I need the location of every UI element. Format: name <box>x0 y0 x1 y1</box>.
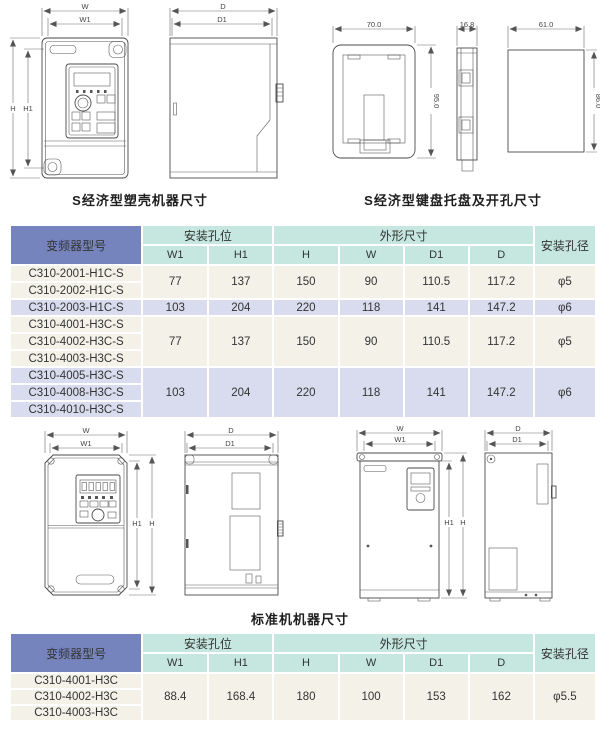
caption-standard-machine: 标准机机器尺寸 <box>148 609 452 628</box>
caption-economic-case: S经济型塑壳机器尺寸 <box>20 190 260 209</box>
value-cell: 220 <box>274 368 337 417</box>
value-cell: 150 <box>274 266 337 298</box>
dim-label-h: H <box>149 519 154 528</box>
header-col-h1: H1 <box>209 246 272 264</box>
std-front-drawing: W W1 H1 H <box>45 426 157 595</box>
header-hole-diameter: 安装孔径 <box>535 226 595 264</box>
dim-label-tray-width: 70.0 <box>367 20 382 29</box>
economic-dimensions-table: 变频器型号安装孔位外形尺寸安装孔径W1H1HWD1DC310-2001-H1C-… <box>9 224 597 419</box>
header-col-h: H <box>274 246 337 264</box>
std-side-drawing: D D1 <box>185 426 283 595</box>
tray-cutout-drawing: 61.0 86.0 <box>508 20 600 152</box>
value-cell: 103 <box>143 368 207 417</box>
value-cell: 162 <box>470 674 533 720</box>
standard-dimension-drawings: W W1 H1 H <box>0 428 600 610</box>
value-cell: 180 <box>274 674 337 720</box>
value-cell: 150 <box>274 317 337 366</box>
dim-label-w1: W1 <box>394 435 405 444</box>
dim-label-hole-height: 86.0 <box>594 94 600 109</box>
header-col-h1: H1 <box>209 654 272 672</box>
value-cell: 147.2 <box>470 368 533 417</box>
value-cell: 141 <box>405 368 468 417</box>
model-cell: C310-2001-H1C-S <box>11 266 141 281</box>
dim-label-d: D <box>220 2 226 11</box>
dim-label-d1: D1 <box>225 439 235 448</box>
dim-label-hole-width: 61.0 <box>539 20 554 29</box>
dim-label-h1: H1 <box>444 518 454 527</box>
value-cell: 77 <box>143 266 207 298</box>
model-cell: C310-4002-H3C <box>11 690 141 704</box>
table-row: C310-4001-H3C88.4168.4180100153162φ5.5 <box>11 674 595 688</box>
value-cell: 118 <box>340 300 403 315</box>
value-cell: 137 <box>209 317 272 366</box>
table-row: C310-2001-H1C-S7713715090110.5117.2φ5 <box>11 266 595 281</box>
header-mounting-holes: 安装孔位 <box>143 226 272 244</box>
model-cell: C310-4002-H3C-S <box>11 334 141 349</box>
value-cell: 100 <box>340 674 403 720</box>
value-cell: φ5 <box>535 266 595 298</box>
dim-label-w1: W1 <box>80 439 91 448</box>
value-cell: 153 <box>405 674 468 720</box>
header-outline: 外形尺寸 <box>274 226 532 244</box>
value-cell: 204 <box>209 300 272 315</box>
header-model: 变频器型号 <box>11 634 141 672</box>
dim-label-w: W <box>81 2 89 11</box>
value-cell: 103 <box>143 300 207 315</box>
value-cell: 141 <box>405 300 468 315</box>
value-cell: 77 <box>143 317 207 366</box>
value-cell: 117.2 <box>470 317 533 366</box>
dim-label-h: H <box>10 104 15 113</box>
dim-label-h1: H1 <box>132 519 142 528</box>
table-row: C310-4001-H3C-S7713715090110.5117.2φ5 <box>11 317 595 332</box>
header-col-d1: D1 <box>405 654 468 672</box>
header-col-d: D <box>470 246 533 264</box>
value-cell: 168.4 <box>209 674 272 720</box>
value-cell: 88.4 <box>143 674 207 720</box>
value-cell: 90 <box>340 317 403 366</box>
model-cell: C310-2003-H1C-S <box>11 300 141 315</box>
model-cell: C310-4001-H3C <box>11 674 141 688</box>
value-cell: φ6 <box>535 368 595 417</box>
value-cell: φ5 <box>535 317 595 366</box>
model-cell: C310-4003-H3C-S <box>11 351 141 366</box>
dim-label-w: W <box>82 426 90 435</box>
model-cell: C310-4008-H3C-S <box>11 385 141 400</box>
value-cell: 118 <box>340 368 403 417</box>
econ-side-drawing: D D1 <box>170 2 283 178</box>
header-outline: 外形尺寸 <box>274 634 532 652</box>
model-cell: C310-4010-H3C-S <box>11 402 141 417</box>
dim-label-tray-height: 95.0 <box>432 94 441 109</box>
header-hole-diameter: 安装孔径 <box>535 634 595 672</box>
tray-front-drawing: 70.0 95.0 <box>333 20 441 158</box>
dim-label-d: D <box>515 424 521 433</box>
dim-label-tray-depth: 16.8 <box>460 20 475 29</box>
value-cell: 110.5 <box>405 317 468 366</box>
value-cell: φ5.5 <box>535 674 595 720</box>
dim-label-d1: D1 <box>512 435 522 444</box>
header-col-w: W <box>340 246 403 264</box>
standard-dimensions-table: 变频器型号安装孔位外形尺寸安装孔径W1H1HWD1DC310-4001-H3C8… <box>9 632 597 722</box>
value-cell: 137 <box>209 266 272 298</box>
std-large-front-drawing: W W1 H1 H <box>357 424 468 601</box>
model-cell: C310-4003-H3C <box>11 706 141 720</box>
std-large-side-drawing: D D1 <box>485 424 556 601</box>
table-row: C310-4005-H3C-S103204220118141147.2φ6 <box>11 368 595 383</box>
header-col-h: H <box>274 654 337 672</box>
value-cell: 90 <box>340 266 403 298</box>
dim-label-d1: D1 <box>217 15 227 24</box>
header-col-d: D <box>470 654 533 672</box>
value-cell: 110.5 <box>405 266 468 298</box>
dim-label-d: D <box>228 426 234 435</box>
value-cell: 147.2 <box>470 300 533 315</box>
header-mounting-holes: 安装孔位 <box>143 634 272 652</box>
model-cell: C310-4001-H3C-S <box>11 317 141 332</box>
dim-label-h1: H1 <box>23 104 33 113</box>
value-cell: φ6 <box>535 300 595 315</box>
model-cell: C310-4005-H3C-S <box>11 368 141 383</box>
header-model: 变频器型号 <box>11 226 141 264</box>
value-cell: 117.2 <box>470 266 533 298</box>
dim-label-h: H <box>460 518 465 527</box>
tray-side-drawing: 16.8 <box>457 20 477 171</box>
economic-dimension-drawings: W W1 H H1 <box>0 0 600 190</box>
manual-page: W W1 H H1 <box>0 0 600 736</box>
econ-front-drawing: W W1 H H1 <box>8 2 128 178</box>
table-row: C310-2003-H1C-S103204220118141147.2φ6 <box>11 300 595 315</box>
value-cell: 204 <box>209 368 272 417</box>
header-col-d1: D1 <box>405 246 468 264</box>
value-cell: 220 <box>274 300 337 315</box>
header-col-w: W <box>340 654 403 672</box>
header-col-w1: W1 <box>143 246 207 264</box>
dim-label-w: W <box>396 424 404 433</box>
header-col-w1: W1 <box>143 654 207 672</box>
caption-keypad-tray: S经济型键盘托盘及开孔尺寸 <box>318 190 588 209</box>
dim-label-w1: W1 <box>79 15 90 24</box>
model-cell: C310-2002-H1C-S <box>11 283 141 298</box>
